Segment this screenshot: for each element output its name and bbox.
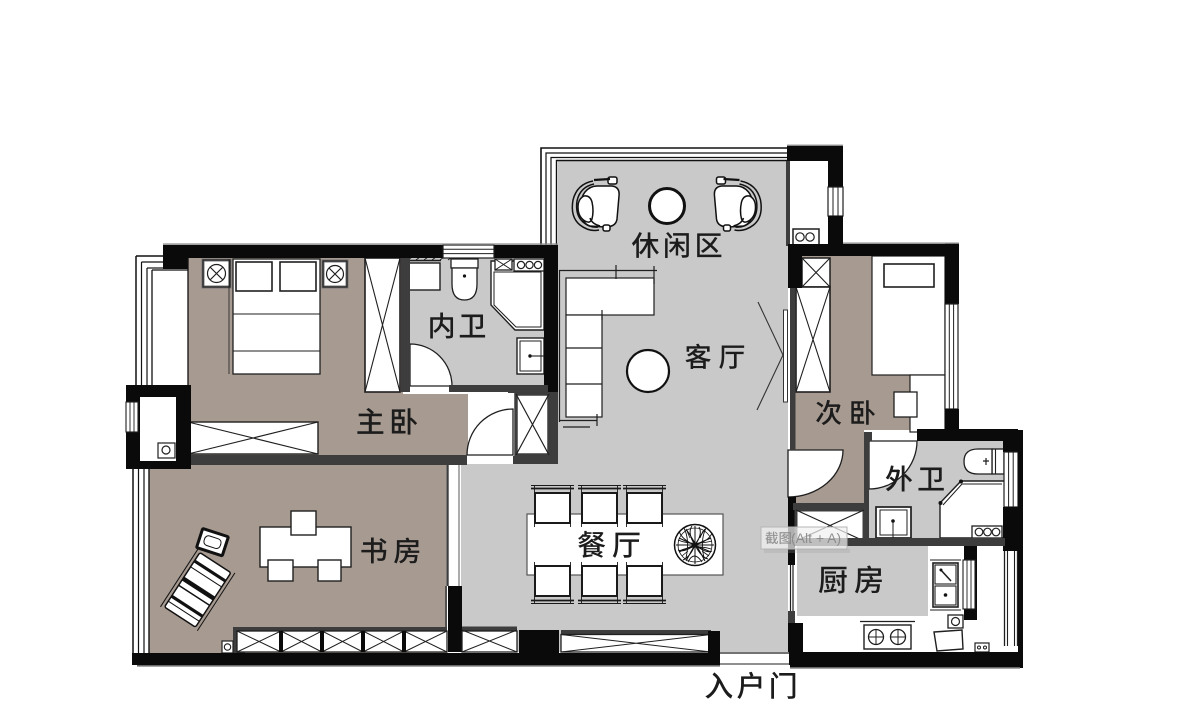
svg-text:(Alt + A): (Alt + A)	[791, 530, 841, 546]
